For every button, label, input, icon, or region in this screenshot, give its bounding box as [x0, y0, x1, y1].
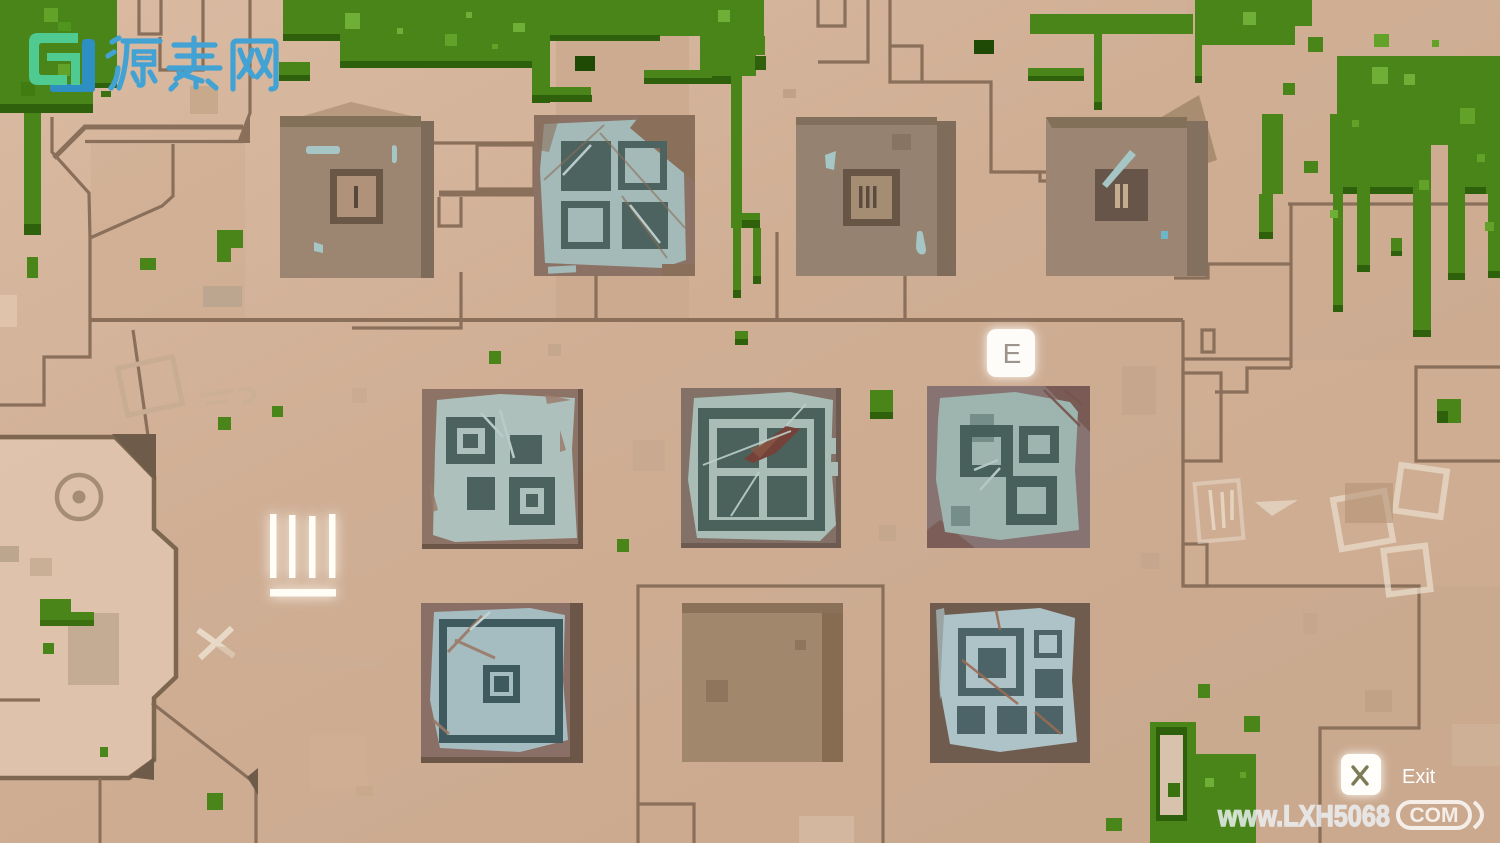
svg-text:E: E	[1003, 338, 1022, 369]
svg-text:Exit: Exit	[1402, 766, 1436, 788]
svg-text:COM: COM	[1410, 804, 1459, 827]
svg-text:www.LXH5068: www.LXH5068	[1217, 800, 1390, 833]
